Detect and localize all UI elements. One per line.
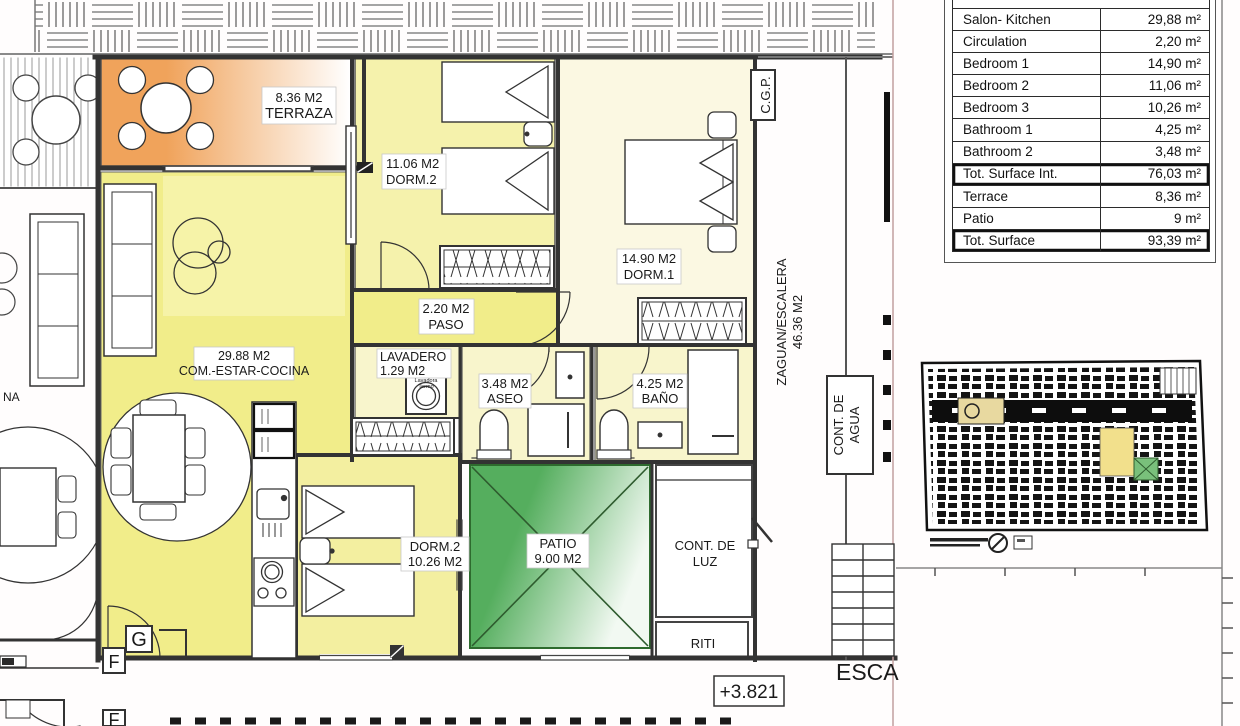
row-label: Patio [953, 208, 1100, 229]
table-row: Bathroom 2 3,48 m² [953, 141, 1209, 163]
bathtub [688, 350, 738, 454]
svg-text:CONT. DE: CONT. DE [831, 394, 846, 455]
sliding-door [346, 126, 356, 244]
row-label: Salon- Kitchen [953, 9, 1100, 30]
fridge [254, 404, 294, 429]
level-mark: +3.821 [720, 682, 779, 703]
svg-text:BAÑO: BAÑO [642, 391, 679, 406]
label-patio: PATIO 9.00 M2 [527, 534, 589, 568]
table-row: Terrace 8,36 m² [953, 185, 1209, 207]
row-value: 14,90 m² [1100, 53, 1209, 74]
nightstand [708, 226, 736, 252]
row-value: 2,20 m² [1100, 31, 1209, 52]
wardrobe-dorm1 [638, 298, 746, 344]
svg-text:LAVADERO: LAVADERO [380, 350, 447, 364]
key-plan-caption [930, 534, 1032, 552]
svg-text:3.48 M2: 3.48 M2 [482, 376, 529, 391]
grid-letter-f2: F [109, 710, 120, 726]
zaguan-zone: C.G.P. ZAGUAN/ESCALERA 46.36 M2 CONT. DE… [751, 0, 894, 726]
svg-text:RITI: RITI [691, 636, 716, 651]
svg-text:PATIO: PATIO [539, 536, 576, 551]
label-aseo: 3.48 M2 ASEO [479, 374, 531, 408]
sofa [104, 184, 156, 356]
key-plan [922, 361, 1207, 552]
wardrobe-dorm2-bottom [352, 418, 454, 455]
terrace-table [141, 83, 191, 133]
row-value: 11,06 m² [1100, 75, 1209, 96]
table-row: Bedroom 3 10,26 m² [953, 96, 1209, 118]
svg-text:46.36 M2: 46.36 M2 [790, 295, 805, 349]
salon-rug [163, 176, 345, 316]
row-value: 93,39 m² [1100, 230, 1209, 251]
label-dorm2-top: 11.06 M2 DORM.2 [382, 154, 446, 189]
label-salon: 29.88 M2 COM.-ESTAR-COCINA [179, 347, 310, 380]
label-terraza: 8.36 M2 TERRAZA [262, 87, 336, 124]
svg-text:DORM.2: DORM.2 [386, 172, 437, 187]
nightstand [708, 112, 736, 138]
svg-text:4.25 M2: 4.25 M2 [637, 376, 684, 391]
svg-text:29.88 M2: 29.88 M2 [218, 349, 270, 363]
stair-treads [832, 544, 894, 656]
table-row-total-surface: Tot. Surface 93,39 m² [953, 229, 1209, 251]
toilet [600, 410, 628, 452]
svg-text:PASO: PASO [428, 317, 463, 332]
key-plan-unit-highlight [1100, 428, 1134, 476]
table-row-partial [953, 0, 1209, 8]
kitchen-counter [252, 402, 296, 658]
svg-text:COM.-ESTAR-COCINA: COM.-ESTAR-COCINA [179, 364, 310, 378]
nightstand [300, 538, 330, 564]
zaguan-label: ZAGUAN/ESCALERA 46.36 M2 [774, 258, 805, 385]
row-value: 4,25 m² [1100, 119, 1209, 140]
row-label: Bedroom 3 [953, 97, 1100, 118]
grid-letter-f: F [109, 652, 120, 672]
row-label: Tot. Surface [953, 230, 1100, 251]
freezer [254, 431, 294, 458]
svg-text:14.90 M2: 14.90 M2 [622, 251, 676, 266]
dining-set [103, 393, 251, 541]
esca-label: ESCA [836, 659, 899, 685]
label-paso: 2.20 M2 PASO [419, 299, 474, 334]
floor-plan-sheet: NA [0, 0, 1240, 726]
svg-text:AGUA: AGUA [847, 406, 862, 443]
svg-text:CONT. DE: CONT. DE [675, 538, 736, 553]
svg-text:ASEO: ASEO [487, 391, 523, 406]
table-row: Salon- Kitchen 29,88 m² [953, 8, 1209, 30]
svg-text:DORM.2: DORM.2 [410, 539, 461, 554]
row-label: Bathroom 2 [953, 142, 1100, 163]
svg-text:Termo: Termo [418, 384, 433, 390]
label-lavadero: LAVADERO 1.29 M2 [377, 349, 451, 378]
terrace-chair [187, 67, 214, 94]
svg-text:ZAGUAN/ESCALERA: ZAGUAN/ESCALERA [774, 258, 789, 385]
shower-tray [528, 404, 584, 456]
svg-text:11.06 M2: 11.06 M2 [386, 156, 439, 171]
neighbor-label-fragment: NA [3, 390, 20, 404]
kitchen-sink [257, 489, 289, 519]
svg-text:9.00 M2: 9.00 M2 [535, 551, 582, 566]
row-label: Bathroom 1 [953, 119, 1100, 140]
table-row: Bathroom 1 4,25 m² [953, 118, 1209, 140]
row-value: 10,26 m² [1100, 97, 1209, 118]
svg-text:10.26 M2: 10.26 M2 [408, 554, 462, 569]
svg-text:1.29 M2: 1.29 M2 [380, 364, 425, 378]
table-row: Patio 9 m² [953, 207, 1209, 229]
label-dorm1: 14.90 M2 DORM.1 [617, 249, 681, 284]
grid-letter-g: G [131, 629, 147, 651]
area-table-frame: Salon- Kitchen 29,88 m² Circulation 2,20… [944, 0, 1216, 263]
wardrobe-dorm2-top [440, 246, 554, 288]
row-value: 29,88 m² [1100, 9, 1209, 30]
table-row: Circulation 2,20 m² [953, 30, 1209, 52]
terrace-chair [119, 67, 146, 94]
row-label: Tot. Surface Int. [953, 164, 1100, 185]
label-bano: 4.25 M2 BAÑO [633, 374, 687, 408]
terrace-chair [187, 123, 214, 150]
row-label: Circulation [953, 31, 1100, 52]
label-dorm2-bottom: DORM.2 10.26 M2 [401, 537, 469, 571]
table-row: Bedroom 1 14,90 m² [953, 52, 1209, 74]
neighbor-unit: NA [0, 57, 106, 726]
row-value: 3,48 m² [1100, 142, 1209, 163]
svg-text:DORM.1: DORM.1 [624, 267, 675, 282]
row-value: 76,03 m² [1100, 164, 1209, 185]
cgp-label: C.G.P. [758, 76, 773, 113]
table-row-total-interior: Tot. Surface Int. 76,03 m² [953, 163, 1209, 185]
row-label: Bedroom 2 [953, 75, 1100, 96]
svg-text:LUZ: LUZ [693, 554, 718, 569]
pavement-strip [0, 0, 893, 54]
terrace-chair [119, 123, 146, 150]
row-label: Bedroom 1 [953, 53, 1100, 74]
table-row: Bedroom 2 11,06 m² [953, 74, 1209, 96]
key-plan-patio-highlight [1134, 458, 1158, 480]
svg-text:2.20 M2: 2.20 M2 [423, 301, 470, 316]
toilet [480, 410, 508, 452]
area-table: Salon- Kitchen 29,88 m² Circulation 2,20… [952, 0, 1210, 252]
svg-text:TERRAZA: TERRAZA [265, 106, 333, 122]
row-value: 9 m² [1100, 208, 1209, 229]
svg-text:8.36 M2: 8.36 M2 [276, 90, 323, 105]
row-value: 8,36 m² [1100, 186, 1209, 207]
row-label: Terrace [953, 186, 1100, 207]
label-riti: RITI [691, 636, 716, 651]
